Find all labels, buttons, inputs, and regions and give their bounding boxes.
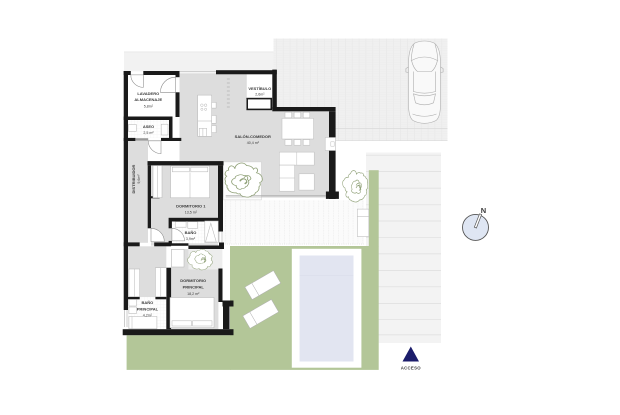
svg-text:ACCESO: ACCESO — [401, 366, 422, 371]
svg-text:BAÑO: BAÑO — [142, 300, 154, 305]
svg-text:2,6m²: 2,6m² — [255, 93, 265, 97]
svg-text:BAÑO: BAÑO — [185, 230, 197, 235]
svg-text:5,8m²: 5,8m² — [144, 104, 154, 108]
svg-text:4,2m²: 4,2m² — [143, 314, 153, 318]
svg-text:2,5 m²: 2,5 m² — [143, 131, 154, 135]
svg-text:DISTRIBUIDOR: DISTRIBUIDOR — [131, 164, 136, 193]
svg-text:PRINCIPAL: PRINCIPAL — [137, 306, 159, 311]
svg-text:VESTÍBULO: VESTÍBULO — [248, 86, 271, 91]
svg-text:3,9m²: 3,9m² — [186, 237, 196, 241]
svg-text:SALÓN-COMEDOR: SALÓN-COMEDOR — [235, 134, 271, 139]
svg-text:DORMITORIO: DORMITORIO — [180, 278, 206, 283]
svg-text:PRINCIPAL: PRINCIPAL — [183, 284, 205, 289]
svg-text:N: N — [481, 206, 486, 215]
svg-text:DORMITORIO 1: DORMITORIO 1 — [176, 204, 206, 209]
svg-text:13,5 m²: 13,5 m² — [185, 211, 198, 215]
svg-text:18,2 m²: 18,2 m² — [187, 292, 200, 296]
svg-text:ASEO: ASEO — [143, 124, 154, 129]
svg-text:LAVADERO: LAVADERO — [137, 91, 159, 96]
svg-text:ALMACENAJE: ALMACENAJE — [134, 97, 162, 102]
svg-text:9,6m²: 9,6m² — [137, 174, 141, 184]
svg-text:40,4 m²: 40,4 m² — [247, 141, 260, 145]
